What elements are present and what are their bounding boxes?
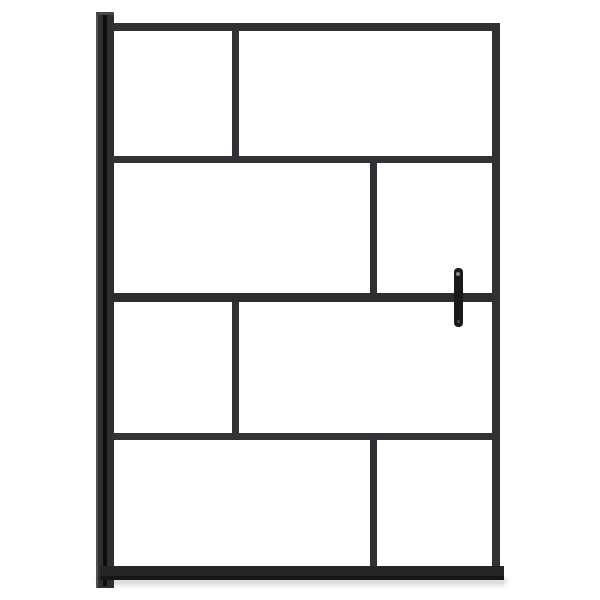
handle-screw-top [456, 272, 460, 276]
bottom-rail-seal [100, 576, 504, 580]
right-stile [492, 23, 500, 580]
wall-profile-seam [103, 15, 107, 586]
top-rail [112, 23, 500, 31]
shower-screen-panel [0, 0, 600, 600]
pane-divider-row4 [370, 440, 377, 566]
handle-screw-bottom [457, 320, 460, 323]
grab-handle [454, 268, 463, 327]
wall-profile-left-highlight [96, 12, 98, 588]
horizontal-rail-3 [112, 433, 492, 440]
horizontal-rail-2 [112, 293, 492, 302]
pane-divider-row3 [232, 302, 239, 433]
horizontal-rail-1 [112, 156, 492, 163]
pane-divider-row1 [232, 31, 239, 156]
shower-screen-product-image [0, 0, 600, 600]
pane-divider-row2 [370, 163, 377, 293]
